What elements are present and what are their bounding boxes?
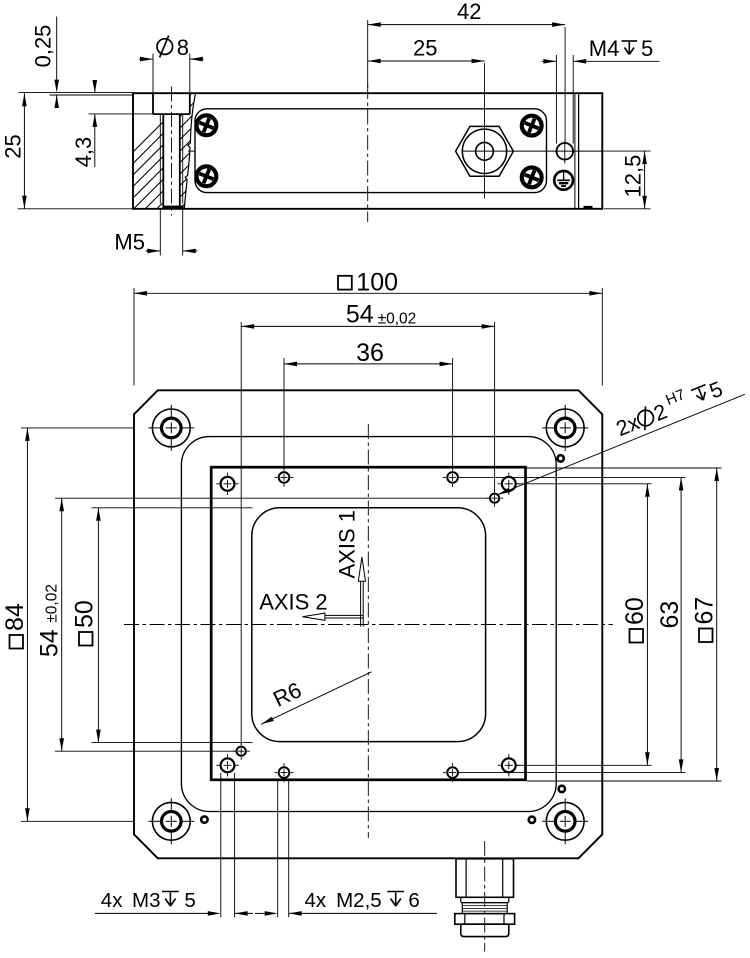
svg-text:8: 8 bbox=[177, 35, 189, 60]
svg-text:67: 67 bbox=[691, 597, 719, 625]
svg-text:25: 25 bbox=[413, 35, 437, 60]
svg-text:4,3: 4,3 bbox=[71, 137, 96, 168]
svg-text:AXIS 2: AXIS 2 bbox=[259, 590, 327, 615]
svg-text:84: 84 bbox=[1, 603, 29, 631]
svg-text:25: 25 bbox=[0, 134, 25, 158]
svg-text:12,5: 12,5 bbox=[621, 155, 646, 198]
svg-text:M2,5: M2,5 bbox=[336, 889, 382, 912]
svg-text:54: 54 bbox=[346, 301, 374, 329]
svg-text:60: 60 bbox=[621, 597, 649, 625]
svg-text:±0,02: ±0,02 bbox=[378, 311, 417, 328]
svg-text:0,25: 0,25 bbox=[30, 25, 55, 68]
svg-text:M5: M5 bbox=[114, 229, 145, 254]
svg-text:5: 5 bbox=[184, 889, 195, 912]
svg-text:4x: 4x bbox=[305, 889, 327, 912]
svg-text:36: 36 bbox=[356, 339, 384, 367]
svg-text:63: 63 bbox=[656, 601, 684, 629]
svg-text:M4: M4 bbox=[589, 36, 620, 61]
svg-text:4x: 4x bbox=[101, 889, 123, 912]
svg-text:5: 5 bbox=[641, 36, 653, 61]
svg-text:M3: M3 bbox=[132, 889, 160, 912]
svg-text:54: 54 bbox=[36, 629, 64, 657]
svg-text:±0,02: ±0,02 bbox=[44, 584, 61, 623]
svg-text:AXIS 1: AXIS 1 bbox=[335, 510, 360, 578]
svg-text:50: 50 bbox=[71, 600, 99, 628]
svg-text:100: 100 bbox=[356, 269, 398, 297]
svg-text:6: 6 bbox=[408, 889, 419, 912]
svg-text:42: 42 bbox=[457, 0, 481, 24]
